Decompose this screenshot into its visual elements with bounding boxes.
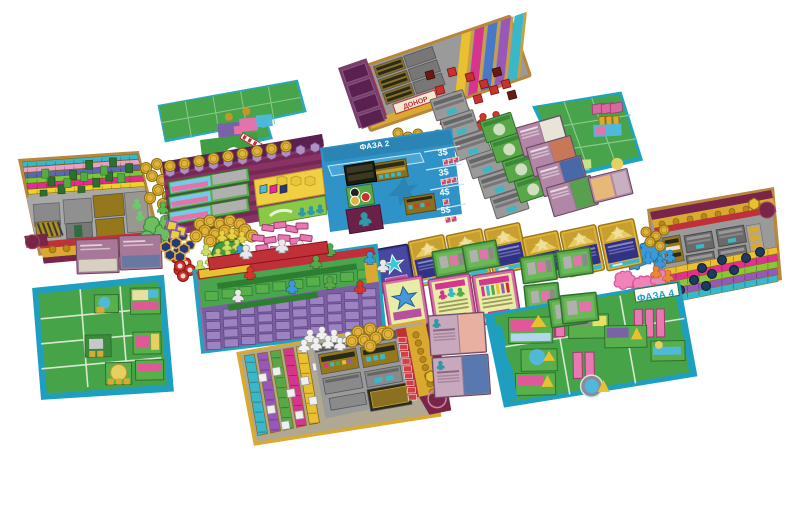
svg-text:5$: 5$ (440, 204, 451, 215)
svg-text:3$: 3$ (437, 147, 448, 158)
svg-text:3$: 3$ (438, 167, 449, 178)
svg-text:4$: 4$ (439, 186, 450, 197)
